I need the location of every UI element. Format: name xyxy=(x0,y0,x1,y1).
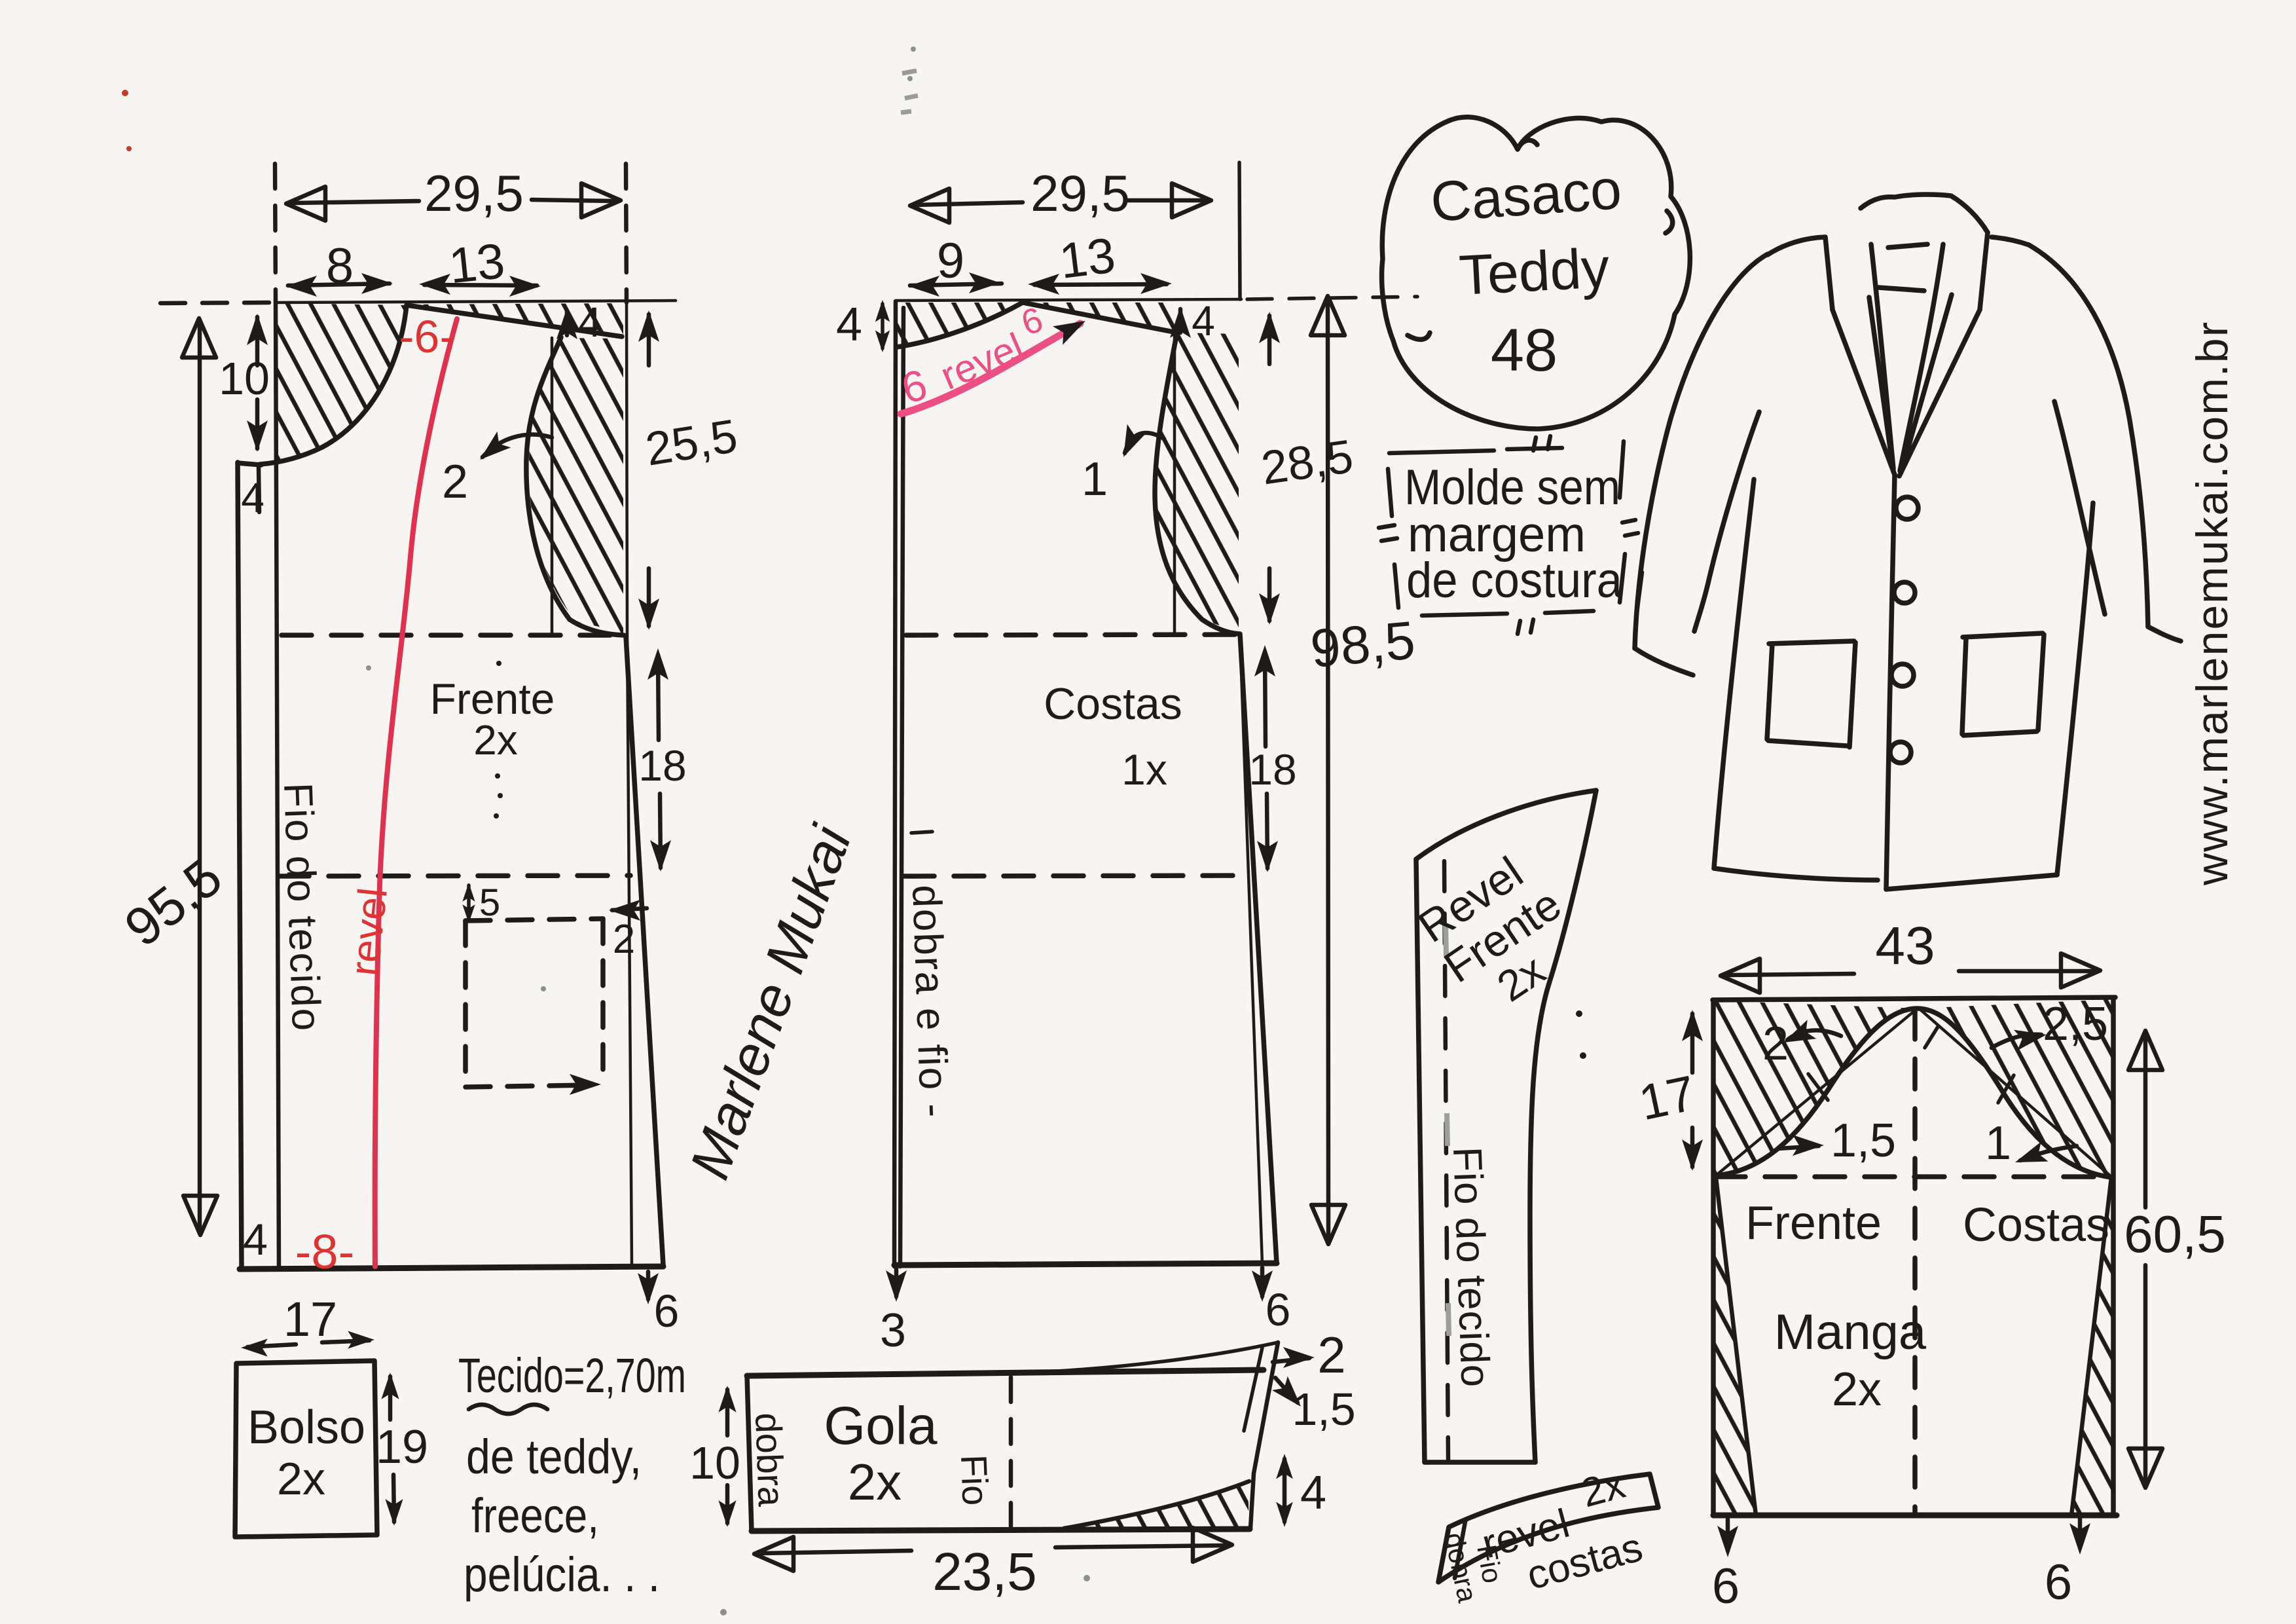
svg-text:Bolso: Bolso xyxy=(247,1401,365,1454)
svg-text:29,5: 29,5 xyxy=(1030,164,1130,222)
svg-text:Manga: Manga xyxy=(1774,1304,1927,1360)
svg-text:19: 19 xyxy=(376,1421,428,1473)
svg-text:Frente: Frente xyxy=(430,674,555,723)
svg-text:-8-: -8- xyxy=(295,1225,354,1279)
svg-text:revel: revel xyxy=(342,886,396,978)
svg-text:Costas: Costas xyxy=(1963,1199,2109,1251)
svg-text:4: 4 xyxy=(243,1215,268,1264)
svg-text:60,5: 60,5 xyxy=(2124,1205,2226,1263)
svg-text:4: 4 xyxy=(578,299,602,346)
svg-text:pelúcia. . .: pelúcia. . . xyxy=(464,1547,660,1602)
svg-text:2x: 2x xyxy=(848,1453,902,1511)
svg-text:1: 1 xyxy=(1985,1117,2011,1170)
svg-text:8: 8 xyxy=(326,238,354,294)
svg-text:4: 4 xyxy=(1300,1467,1326,1519)
svg-text:1: 1 xyxy=(1082,453,1108,506)
svg-text:2,5: 2,5 xyxy=(2043,998,2108,1050)
svg-text:2x: 2x xyxy=(1832,1363,1882,1416)
svg-text:1,5: 1,5 xyxy=(1831,1115,1896,1167)
svg-text:17: 17 xyxy=(1635,1065,1700,1132)
svg-text:2x: 2x xyxy=(473,716,518,764)
svg-text:2: 2 xyxy=(1762,1018,1789,1070)
svg-text:4: 4 xyxy=(836,299,862,351)
svg-text:Costas: Costas xyxy=(1044,679,1182,729)
svg-text:Teddy: Teddy xyxy=(1457,236,1611,307)
svg-text:dobra: dobra xyxy=(748,1412,792,1507)
svg-text:1x: 1x xyxy=(1121,745,1167,794)
svg-text:23,5: 23,5 xyxy=(932,1542,1037,1602)
svg-text:43: 43 xyxy=(1875,916,1935,976)
svg-text:Fio: Fio xyxy=(953,1454,996,1506)
svg-text:18: 18 xyxy=(638,741,686,790)
svg-text:29,5: 29,5 xyxy=(424,164,524,222)
svg-text:10: 10 xyxy=(219,353,270,404)
svg-text:2: 2 xyxy=(613,917,635,962)
svg-text:6: 6 xyxy=(654,1285,680,1337)
svg-text:6: 6 xyxy=(1712,1559,1740,1614)
svg-text:48: 48 xyxy=(1491,317,1558,384)
svg-text:10: 10 xyxy=(689,1437,740,1488)
svg-text:4: 4 xyxy=(1192,297,1215,344)
svg-text:Fio do tecido: Fio do tecido xyxy=(1444,1146,1498,1388)
svg-text:de teddy,: de teddy, xyxy=(466,1430,642,1484)
svg-text:Gola: Gola xyxy=(824,1396,938,1456)
svg-text:2: 2 xyxy=(1317,1326,1345,1384)
svg-text:17: 17 xyxy=(283,1292,337,1346)
svg-text:2x: 2x xyxy=(277,1453,325,1504)
svg-text:Frente: Frente xyxy=(1745,1197,1882,1249)
svg-text:9: 9 xyxy=(937,233,964,289)
svg-text:1,5: 1,5 xyxy=(1292,1384,1355,1435)
svg-text:Fio do tecido: Fio do tecido xyxy=(275,782,329,1033)
svg-text:Tecido=2,70m: Tecido=2,70m xyxy=(458,1348,686,1403)
svg-text:de costura: de costura xyxy=(1406,553,1623,608)
svg-text:6: 6 xyxy=(1266,1284,1291,1335)
svg-text:13: 13 xyxy=(1057,227,1118,289)
svg-text:2: 2 xyxy=(442,456,468,508)
svg-text:dobra e fio -: dobra e fio - xyxy=(903,884,957,1119)
svg-text:98,5: 98,5 xyxy=(1308,610,1417,679)
svg-text:18: 18 xyxy=(1248,745,1296,794)
svg-text:freece,: freece, xyxy=(471,1488,599,1543)
svg-text:Casaco: Casaco xyxy=(1429,158,1624,234)
svg-text:3: 3 xyxy=(880,1304,906,1357)
svg-text:13: 13 xyxy=(446,233,507,294)
svg-text:6: 6 xyxy=(2045,1555,2072,1610)
svg-text:-6-: -6- xyxy=(399,311,455,362)
svg-text:www.marlenemukai.com.br: www.marlenemukai.com.br xyxy=(2187,321,2237,886)
svg-text:4: 4 xyxy=(241,474,264,521)
svg-text:5: 5 xyxy=(479,881,500,924)
